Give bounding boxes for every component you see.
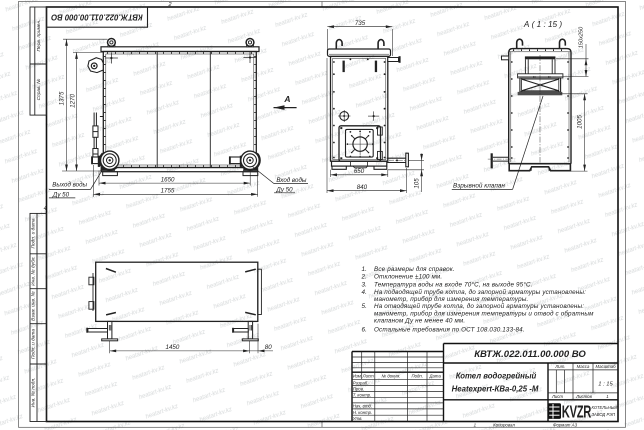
svg-text:1005: 1005 [576,115,583,129]
svg-text:КОТЕЛЬНЫЙ: КОТЕЛЬНЫЙ [592,405,618,410]
svg-text:Взрывной клапан: Взрывной клапан [453,182,505,190]
svg-text:105: 105 [414,178,421,189]
svg-text:650: 650 [354,168,365,175]
svg-text:Нач. отд.: Нач. отд. [353,404,372,409]
svg-text:Все размеры для справок.: Все размеры для справок. [374,265,455,273]
svg-text:А ( 1 : 15 ): А ( 1 : 15 ) [523,20,562,29]
svg-text:1650: 1650 [161,176,175,183]
svg-text:Взам. инв. №: Взам. инв. № [31,291,37,321]
svg-text:Копировал: Копировал [493,422,515,427]
svg-text:Перв. примен.: Перв. примен. [36,20,42,52]
svg-text:Остальные требования по ОСТ 10: Остальные требования по ОСТ 108.030.133-… [374,325,525,333]
svg-text:клапаном Ду не менее 40 мм.: клапаном Ду не менее 40 мм. [374,318,465,325]
svg-text:Лист: Лист [362,374,374,379]
svg-text:1755: 1755 [161,188,175,195]
svg-text:1450: 1450 [166,344,180,351]
svg-text:манометр, прибор для измерения: манометр, прибор для измерения температу… [374,309,594,317]
svg-text:Отклонение ±100 мм.: Отклонение ±100 мм. [374,273,442,280]
svg-text:ЗАВОД РЭП: ЗАВОД РЭП [592,412,616,417]
svg-text:№ докум.: № докум. [382,374,401,379]
svg-text:80: 80 [265,344,272,351]
svg-text:Масштаб: Масштаб [595,364,616,369]
svg-text:4: 4 [44,206,47,212]
svg-text:Пров.: Пров. [353,387,364,392]
svg-text:Т. контр.: Т. контр. [353,393,372,398]
svg-text:Разраб.: Разраб. [353,380,369,385]
svg-text:5.: 5. [361,303,367,310]
svg-text:Ду 50: Ду 50 [52,192,70,199]
svg-text:Подп. и дата: Подп. и дата [31,329,37,359]
svg-text:Подп. и дата: Подп. и дата [31,218,37,248]
svg-text:Котел водогрейный: Котел водогрейный [456,372,537,381]
svg-text:150х250: 150х250 [579,26,585,48]
svg-text:735: 735 [355,20,366,27]
svg-text:Температура воды на входе 70°С: Температура воды на входе 70°С, на выход… [374,280,533,288]
svg-text:Heatexpert-КВа-0,25 -М: Heatexpert-КВа-0,25 -М [452,385,539,394]
svg-text:3.: 3. [361,281,367,288]
svg-text:1375: 1375 [58,91,65,105]
svg-text:1.: 1. [361,266,367,273]
svg-text:4.: 4. [361,289,367,296]
svg-text:Справ. №: Справ. № [36,79,42,101]
svg-text:Лит.: Лит. [554,364,565,369]
svg-text:KVZR: KVZR [562,403,592,422]
svg-text:КВТЖ.022.011.00.000 ВО: КВТЖ.022.011.00.000 ВО [51,13,143,22]
svg-text:1270: 1270 [69,94,76,108]
svg-text:Ду 50: Ду 50 [275,186,293,193]
svg-text:манометр, прибор для измерения: манометр, прибор для измерения температу… [374,295,528,303]
svg-text:Утв.: Утв. [353,416,363,421]
svg-text:2.: 2. [360,273,367,280]
svg-text:6.: 6. [361,326,367,333]
svg-text:Инв. № подл.: Инв. № подл. [31,378,37,408]
svg-text:КВТЖ.022.011.00.000 ВО: КВТЖ.022.011.00.000 ВО [474,349,586,360]
svg-text:Инв. № дубл.: Инв. № дубл. [31,256,37,286]
svg-text:Подп.: Подп. [411,374,422,379]
svg-text:Формат А3: Формат А3 [553,422,578,427]
svg-text:На отводящей трубе котла, до з: На отводящей трубе котла, до запорной ар… [374,302,584,310]
svg-text:Выход воды: Выход воды [52,182,87,189]
svg-text:Листов: Листов [575,394,592,399]
svg-text:Масса: Масса [577,364,590,369]
svg-text:Лист: Лист [551,394,563,399]
svg-text:Н. контр.: Н. контр. [353,410,372,415]
svg-text:Изм: Изм [353,374,361,379]
svg-text:840: 840 [357,184,368,191]
svg-text:1 : 15: 1 : 15 [598,382,613,388]
svg-text:А: А [283,94,290,104]
svg-text:Дата: Дата [429,374,442,379]
svg-text:Вход воды: Вход воды [276,177,306,184]
